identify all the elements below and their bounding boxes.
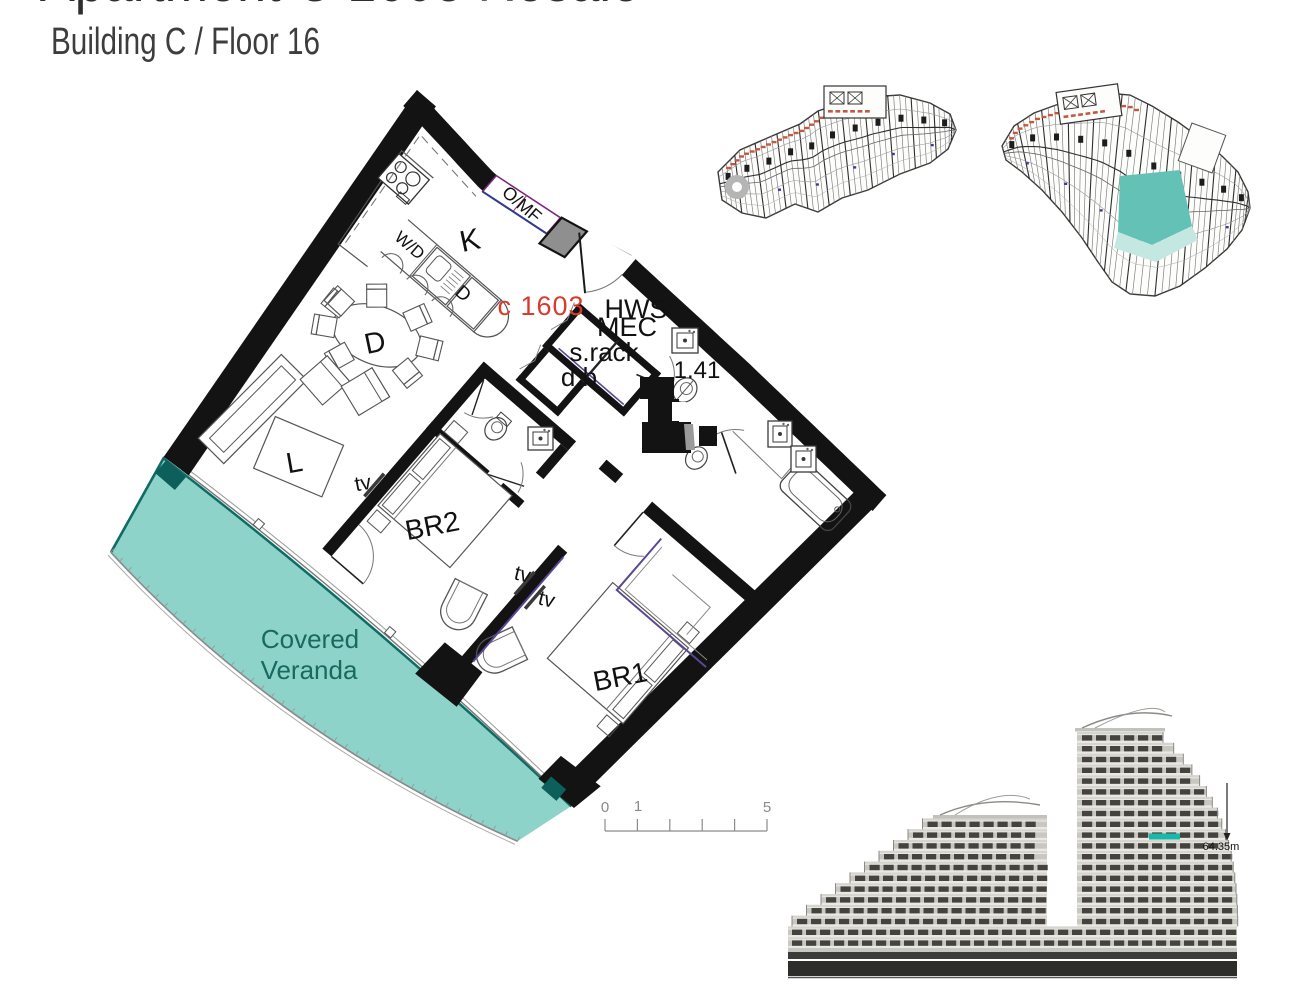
svg-text:Building C / Floor 16: Building C / Floor 16 <box>51 21 320 63</box>
svg-text:0: 0 <box>601 799 609 816</box>
svg-text:5: 5 <box>763 799 771 816</box>
svg-text:64.35m: 64.35m <box>1203 841 1240 853</box>
svg-text:1: 1 <box>634 798 642 815</box>
svg-text:1.41: 1.41 <box>674 357 721 384</box>
svg-text:Veranda: Veranda <box>261 655 358 685</box>
svg-text:Apartment C 1603 Resale: Apartment C 1603 Resale <box>40 0 640 15</box>
svg-text:Covered: Covered <box>261 624 359 654</box>
svg-text:c 1603: c 1603 <box>497 291 584 321</box>
svg-text:d.b: d.b <box>561 362 597 392</box>
